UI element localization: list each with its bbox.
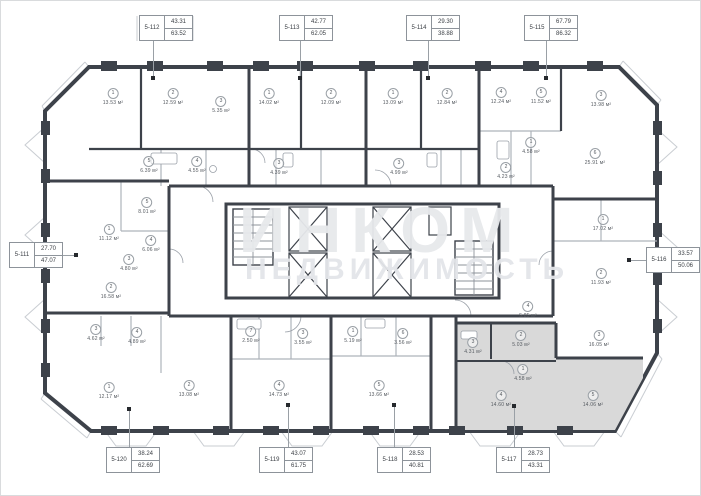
unit-areas: 33.5750.06 [672, 248, 699, 272]
unit-area-living: 29.30 [432, 16, 459, 29]
unit-riser-dot [426, 76, 430, 80]
unit-area-living: 42.77 [305, 16, 332, 29]
unit-area-total: 40.81 [403, 461, 430, 473]
callout-leader-line [129, 409, 130, 447]
unit-callout-5-112[interactable]: 5-11243.3163.52 [139, 15, 193, 41]
unit-area-living: 27.70 [35, 243, 62, 256]
unit-riser-dot [392, 403, 396, 407]
floor-plan-svg [1, 1, 701, 496]
unit-callout-5-111[interactable]: 5-11127.7047.07 [9, 242, 63, 268]
unit-callout-5-120[interactable]: 5-12038.2462.69 [106, 447, 160, 473]
service-shaft [429, 207, 451, 235]
unit-area-total: 86.32 [550, 29, 577, 41]
unit-areas: 27.7047.07 [35, 243, 62, 267]
unit-id: 5-117 [497, 448, 522, 472]
unit-area-total: 50.06 [672, 261, 699, 273]
unit-id: 5-111 [10, 243, 35, 267]
unit-callout-5-118[interactable]: 5-11828.5340.81 [377, 447, 431, 473]
unit-area-living: 43.07 [285, 448, 312, 461]
unit-callout-5-119[interactable]: 5-11943.0761.75 [259, 447, 313, 473]
unit-callout-5-116[interactable]: 5-11633.5750.06 [646, 247, 700, 273]
elevator-shaft-icon [289, 207, 327, 251]
callout-leader-line [288, 405, 289, 447]
unit-callout-5-114[interactable]: 5-11429.3038.88 [406, 15, 460, 41]
unit-areas: 67.7986.32 [550, 16, 577, 40]
unit-callout-5-117[interactable]: 5-11728.7343.31 [496, 447, 550, 473]
callout-leader-line [394, 405, 395, 447]
elevator-shaft-icon [373, 207, 411, 251]
unit-areas: 43.3163.52 [165, 16, 192, 40]
unit-area-total: 63.52 [165, 29, 192, 41]
callout-leader-line [546, 41, 547, 78]
unit-areas: 29.3038.88 [432, 16, 459, 40]
unit-riser-dot [127, 407, 131, 411]
unit-riser-dot [151, 76, 155, 80]
unit-id: 5-118 [378, 448, 403, 472]
unit-riser-dot [74, 253, 78, 257]
callout-leader-line [629, 260, 646, 261]
unit-area-living: 28.73 [522, 448, 549, 461]
unit-area-living: 38.24 [132, 448, 159, 461]
unit-area-living: 43.31 [165, 16, 192, 29]
unit-areas: 28.5340.81 [403, 448, 430, 472]
callout-leader-line [300, 41, 301, 78]
unit-id: 5-114 [407, 16, 432, 40]
unit-callout-5-115[interactable]: 5-11567.7986.32 [524, 15, 578, 41]
unit-riser-dot [298, 76, 302, 80]
unit-id: 5-115 [525, 16, 550, 40]
elevator-shaft-icon [373, 253, 411, 297]
unit-area-living: 67.79 [550, 16, 577, 29]
unit-callout-5-113[interactable]: 5-11342.7762.05 [279, 15, 333, 41]
unit-areas: 43.0761.75 [285, 448, 312, 472]
unit-riser-dot [512, 404, 516, 408]
elevator-shaft-icon [289, 253, 327, 297]
callout-leader-line [514, 406, 515, 447]
unit-id: 5-112 [140, 16, 165, 40]
callout-leader-line [153, 41, 154, 78]
unit-area-total: 43.31 [522, 461, 549, 473]
unit-area-total: 62.05 [305, 29, 332, 41]
unit-areas: 42.7762.05 [305, 16, 332, 40]
unit-area-total: 38.88 [432, 29, 459, 41]
unit-riser-dot [286, 403, 290, 407]
unit-areas: 28.7343.31 [522, 448, 549, 472]
unit-id: 5-116 [647, 248, 672, 272]
unit-riser-dot [627, 258, 631, 262]
unit-areas: 38.2462.69 [132, 448, 159, 472]
unit-id: 5-113 [280, 16, 305, 40]
callout-leader-line [428, 41, 429, 78]
unit-area-living: 33.57 [672, 248, 699, 261]
unit-id: 5-120 [107, 448, 132, 472]
unit-id: 5-119 [260, 448, 285, 472]
unit-area-total: 62.69 [132, 461, 159, 473]
unit-area-living: 28.53 [403, 448, 430, 461]
unit-area-total: 61.75 [285, 461, 312, 473]
unit-area-total: 47.07 [35, 256, 62, 268]
floor-plan-page: 113.53 м²212.59 м²35.35 м²56.39 м²44.55 … [0, 0, 701, 496]
unit-riser-dot [544, 76, 548, 80]
